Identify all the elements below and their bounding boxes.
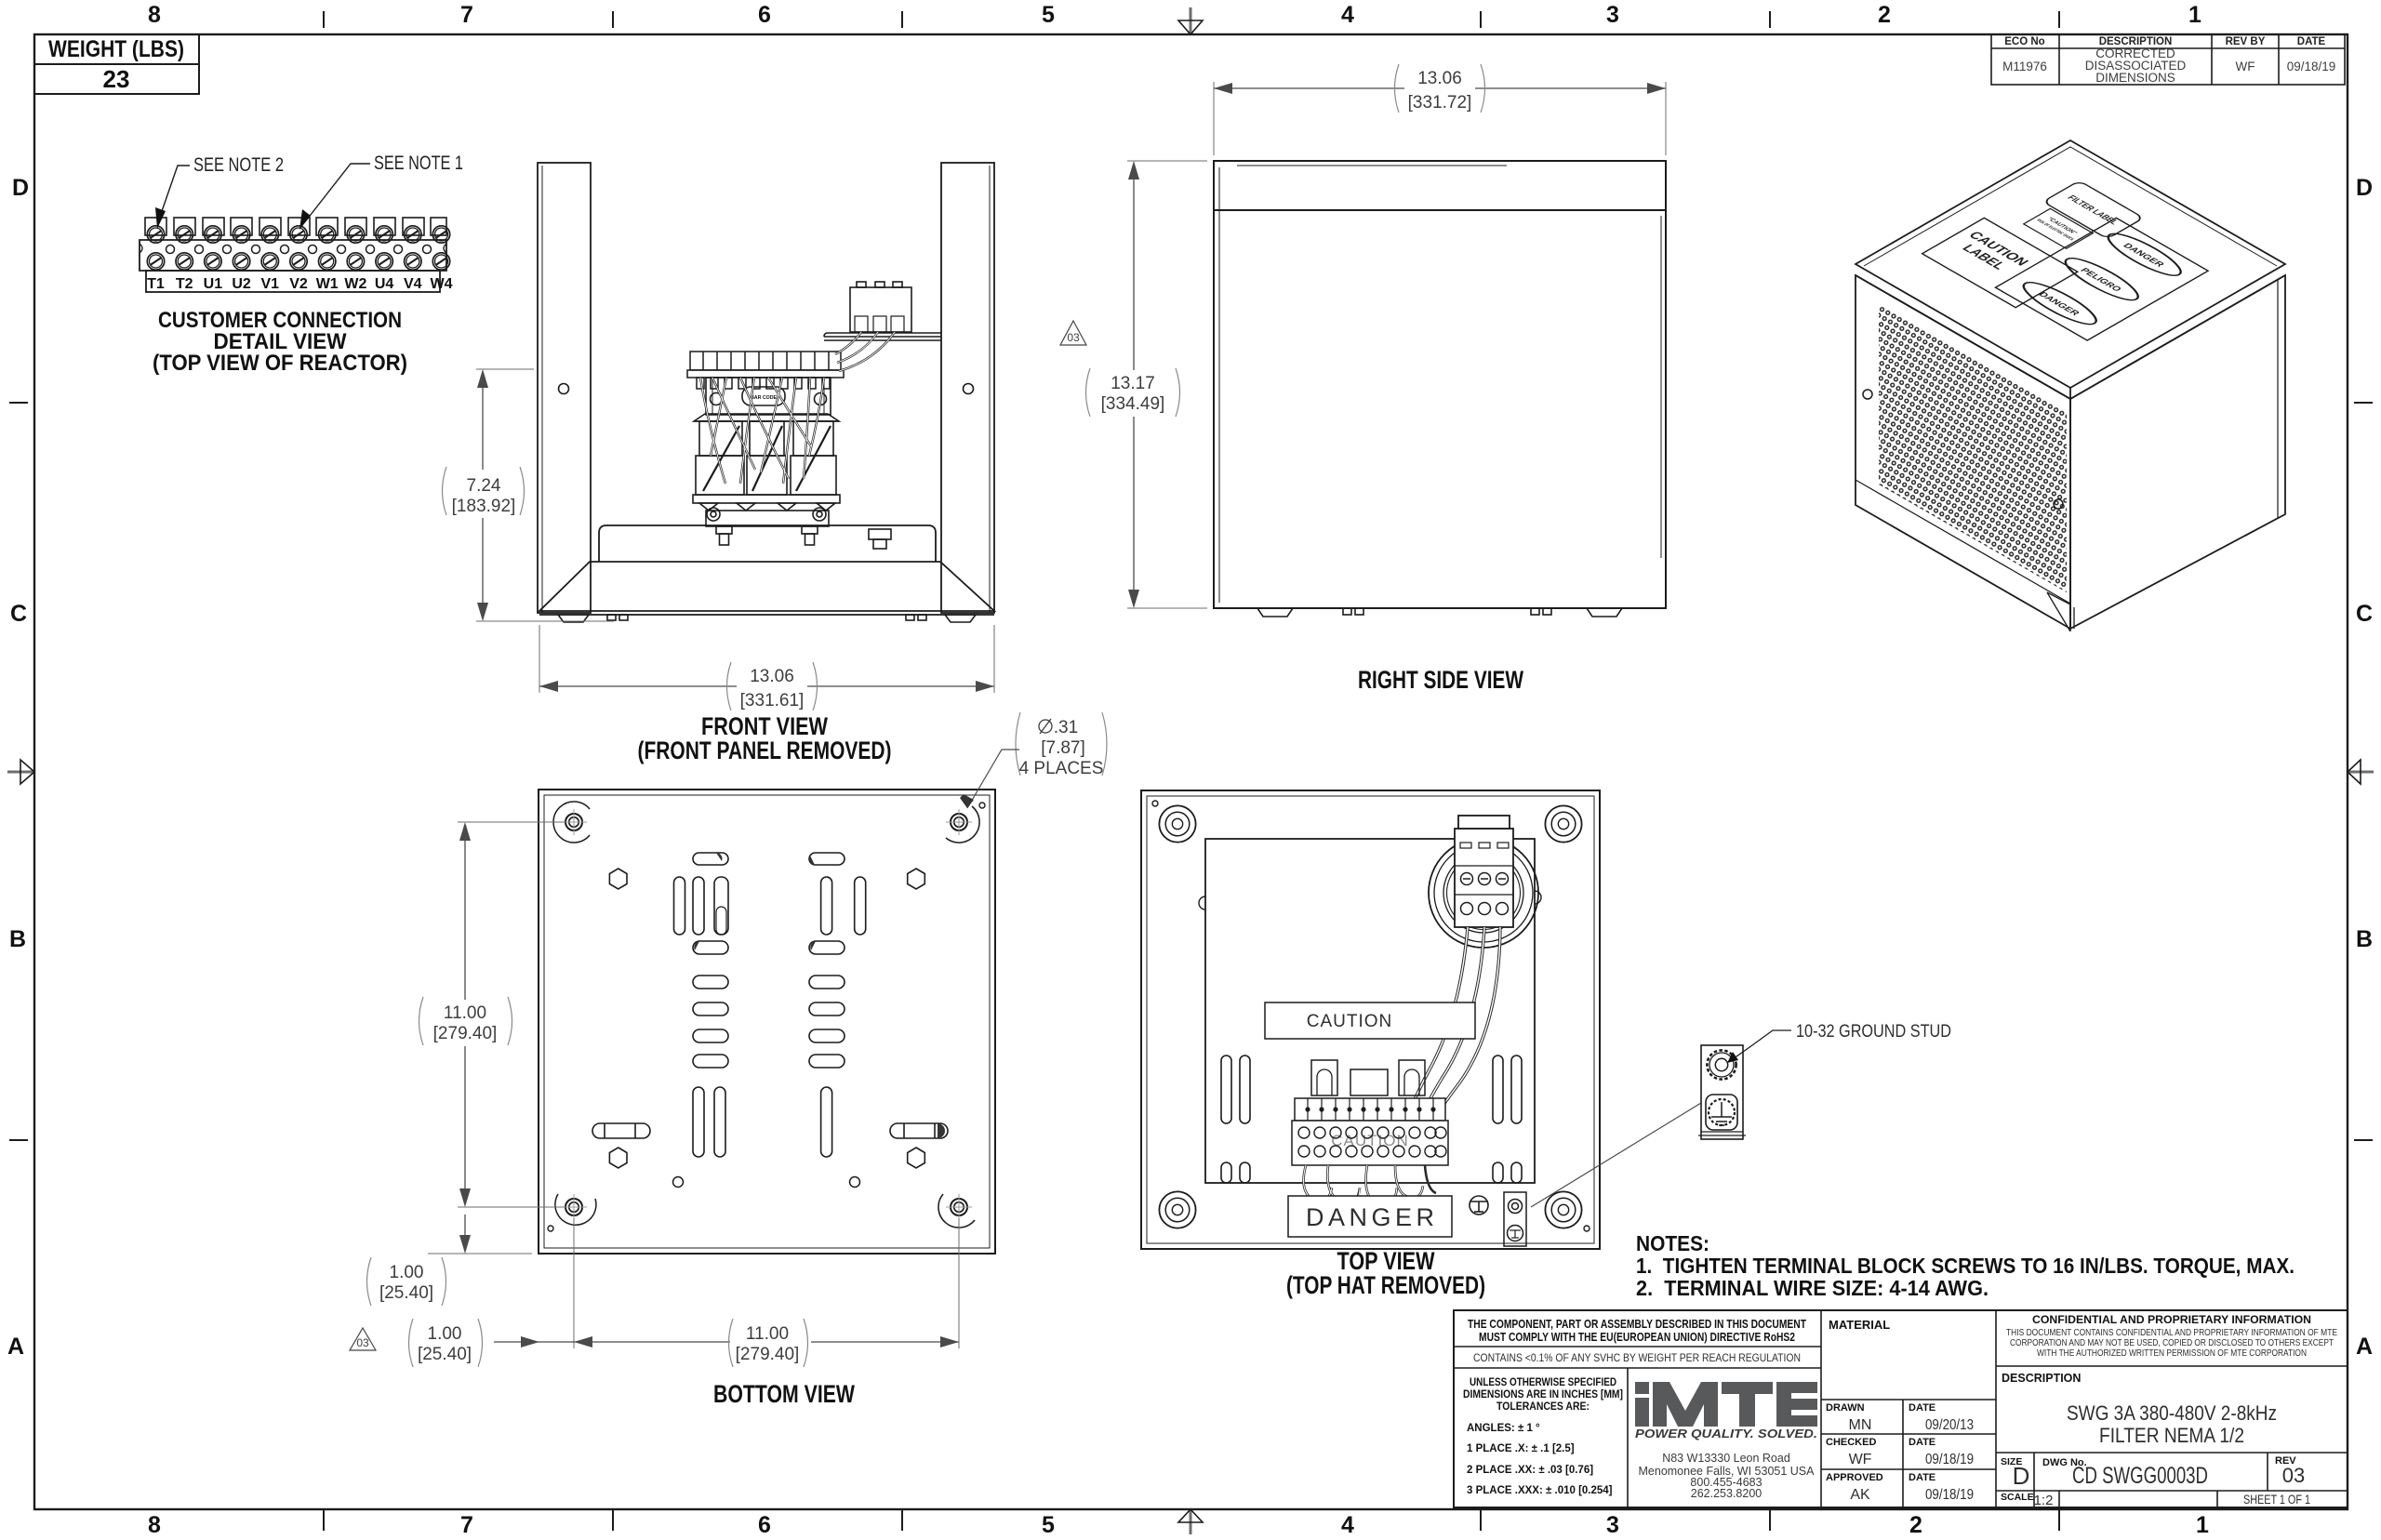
svg-text:[25.40]: [25.40]	[379, 1283, 433, 1303]
svg-text:CAUTION: CAUTION	[1307, 1012, 1393, 1031]
svg-text:POWER QUALITY. SOLVED.: POWER QUALITY. SOLVED.	[1635, 1427, 1817, 1440]
svg-text:WF: WF	[1849, 1452, 1872, 1467]
svg-text:SEE NOTE 2: SEE NOTE 2	[193, 154, 284, 176]
svg-text:6: 6	[758, 2, 771, 28]
svg-text:09/18/19: 09/18/19	[1925, 1487, 1974, 1503]
svg-text:N83 W13330 Leon Road: N83 W13330 Leon Road	[1662, 1452, 1790, 1465]
svg-text:U1: U1	[204, 276, 223, 292]
svg-text:A: A	[2356, 1334, 2373, 1360]
svg-text:ANGLES: ± 1 °: ANGLES: ± 1 °	[1467, 1423, 1540, 1434]
svg-text:V1: V1	[261, 276, 280, 292]
svg-text:M11976: M11976	[2002, 60, 2047, 73]
svg-text:THE COMPONENT, PART OR ASSEMBL: THE COMPONENT, PART OR ASSEMBLY DESCRIBE…	[1468, 1318, 1806, 1331]
svg-text:11.00: 11.00	[746, 1324, 789, 1344]
svg-text:[279.40]: [279.40]	[736, 1345, 800, 1364]
svg-text:5: 5	[1042, 1512, 1055, 1538]
svg-text:(TOP VIEW OF REACTOR): (TOP VIEW OF REACTOR)	[153, 351, 407, 376]
svg-text:3 PLACE .XXX: ± .010 [0.254]: 3 PLACE .XXX: ± .010 [0.254]	[1467, 1485, 1613, 1496]
svg-text:1 PLACE .X: ± .1 [2.5]: 1 PLACE .X: ± .1 [2.5]	[1467, 1443, 1575, 1454]
svg-text:C: C	[2356, 601, 2373, 627]
svg-text:SEE NOTE 1: SEE NOTE 1	[374, 153, 463, 174]
svg-text:UNLESS OTHERWISE SPECIFIED: UNLESS OTHERWISE SPECIFIED	[1470, 1377, 1616, 1388]
svg-text:4: 4	[1341, 1512, 1354, 1538]
svg-text:4: 4	[1341, 2, 1354, 28]
svg-text:23: 23	[103, 65, 130, 93]
svg-text:MN: MN	[1849, 1417, 1872, 1433]
svg-text:7: 7	[460, 1512, 473, 1538]
svg-text:2. TERMINAL WIRE SIZE: 4-14 A: 2. TERMINAL WIRE SIZE: 4-14 AWG.	[1636, 1276, 1989, 1300]
svg-text:(FRONT PANEL REMOVED): (FRONT PANEL REMOVED)	[638, 737, 892, 764]
svg-text:ECO No: ECO No	[2004, 36, 2044, 47]
svg-text:MUST COMPLY WITH THE EU(EUROPE: MUST COMPLY WITH THE EU(EUROPEAN UNION) …	[1479, 1331, 1795, 1344]
svg-text:11.00: 11.00	[444, 1003, 486, 1023]
svg-text:CONTAINS <0.1% OF ANY SVHC BY: CONTAINS <0.1% OF ANY SVHC BY WEIGHT PER…	[1473, 1351, 1801, 1364]
svg-text:5: 5	[1042, 2, 1055, 28]
svg-text:6: 6	[758, 1512, 771, 1538]
svg-text:3: 3	[1606, 2, 1619, 28]
svg-text:CONFIDENTIAL AND PROPRIETARY I: CONFIDENTIAL AND PROPRIETARY INFORMATION	[2032, 1313, 2311, 1326]
svg-text:[331.72]: [331.72]	[1408, 93, 1472, 113]
svg-text:[183.92]: [183.92]	[452, 497, 516, 516]
svg-text:10-32 GROUND STUD: 10-32 GROUND STUD	[1796, 1022, 1951, 1042]
svg-text:DIMENSIONS: DIMENSIONS	[2095, 71, 2175, 85]
svg-text:SHEET 1 OF 1: SHEET 1 OF 1	[2243, 1492, 2310, 1507]
svg-text:DRAWN: DRAWN	[1826, 1402, 1865, 1414]
svg-text:13.06: 13.06	[750, 667, 794, 686]
svg-text:[331.61]: [331.61]	[740, 691, 805, 710]
svg-text:09/20/13: 09/20/13	[1925, 1417, 1974, 1433]
svg-text:03: 03	[1067, 331, 1080, 344]
svg-text:U4: U4	[375, 276, 394, 292]
svg-text:DESCRIPTION: DESCRIPTION	[2002, 1372, 2081, 1385]
svg-text:D: D	[12, 175, 29, 201]
svg-text:CAUTION: CAUTION	[1331, 1132, 1409, 1149]
svg-text:SCALE: SCALE	[2001, 1492, 2034, 1503]
svg-text:1: 1	[2196, 1512, 2209, 1538]
svg-text:[334.49]: [334.49]	[1101, 394, 1165, 414]
svg-text:DIMENSIONS ARE IN INCHES [MM]: DIMENSIONS ARE IN INCHES [MM]	[1463, 1389, 1623, 1401]
svg-text:[279.40]: [279.40]	[433, 1024, 498, 1043]
svg-text:SWG 3A 380-480V 2-8kHz: SWG 3A 380-480V 2-8kHz	[2067, 1401, 2277, 1425]
svg-text:A: A	[7, 1334, 24, 1360]
svg-text:09/18/19: 09/18/19	[2287, 60, 2336, 73]
svg-text:09/18/19: 09/18/19	[1925, 1452, 1974, 1467]
svg-text:MATERIAL: MATERIAL	[1829, 1318, 1890, 1332]
svg-text:T2: T2	[176, 276, 193, 292]
svg-text:WITH THE AUTHORIZED WRITTEN PE: WITH THE AUTHORIZED WRITTEN PERMISSION O…	[2037, 1348, 2307, 1359]
svg-text:T1: T1	[147, 276, 165, 292]
svg-text:W4: W4	[431, 276, 453, 292]
svg-text:03: 03	[356, 1336, 369, 1349]
svg-text:D: D	[2013, 1462, 2030, 1490]
svg-text:W2: W2	[344, 276, 366, 292]
svg-text:[7.87]: [7.87]	[1041, 738, 1085, 758]
svg-text:B: B	[9, 926, 26, 952]
svg-text:FILTER NEMA 1/2: FILTER NEMA 1/2	[2099, 1424, 2244, 1447]
svg-text:1.00: 1.00	[390, 1263, 424, 1282]
svg-text:[25.40]: [25.40]	[418, 1345, 472, 1364]
svg-text:TOLERANCES ARE:: TOLERANCES ARE:	[1496, 1401, 1590, 1413]
svg-text:1:2: 1:2	[2034, 1493, 2054, 1508]
svg-text:CORPORATION AND MAY NOT BE USE: CORPORATION AND MAY NOT BE USED, COPIED …	[2010, 1338, 2334, 1348]
svg-text:2 PLACE .XX: ± .03 [0.76]: 2 PLACE .XX: ± .03 [0.76]	[1467, 1465, 1593, 1476]
svg-text:DATE: DATE	[2297, 36, 2326, 47]
svg-text:WEIGHT (LBS): WEIGHT (LBS)	[48, 36, 184, 62]
svg-text:03: 03	[2282, 1464, 2305, 1487]
svg-text:RIGHT SIDE VIEW: RIGHT SIDE VIEW	[1358, 666, 1523, 694]
svg-text:W1: W1	[316, 276, 339, 292]
svg-text:DATE: DATE	[1909, 1437, 1935, 1448]
svg-text:U2: U2	[232, 276, 251, 292]
svg-text:4 PLACES: 4 PLACES	[1019, 759, 1104, 778]
svg-text:AK: AK	[1850, 1487, 1870, 1503]
svg-text:2: 2	[1878, 2, 1891, 28]
svg-text:BOTTOM VIEW: BOTTOM VIEW	[713, 1380, 855, 1408]
svg-text:THIS DOCUMENT CONTAINS CONFIDE: THIS DOCUMENT CONTAINS CONFIDENTIAL AND …	[2006, 1328, 2337, 1338]
svg-text:7.24: 7.24	[467, 476, 501, 496]
svg-text:CHECKED: CHECKED	[1826, 1437, 1876, 1448]
svg-text:2: 2	[1909, 1512, 1922, 1538]
svg-text:8: 8	[148, 2, 161, 28]
svg-text:DATE: DATE	[1909, 1472, 1935, 1483]
svg-text:1: 1	[2188, 2, 2201, 28]
svg-text:CD SWGG0003D: CD SWGG0003D	[2072, 1463, 2208, 1489]
svg-text:1. TIGHTEN TERMINAL BLOCK SCR: 1. TIGHTEN TERMINAL BLOCK SCREWS TO 16 I…	[1636, 1254, 2295, 1278]
svg-text:BAR CODE: BAR CODE	[751, 395, 777, 401]
svg-text:V2: V2	[289, 276, 308, 292]
svg-text:(TOP HAT REMOVED): (TOP HAT REMOVED)	[1286, 1271, 1485, 1299]
svg-text:DATE: DATE	[1909, 1402, 1935, 1414]
svg-text:1.00: 1.00	[428, 1324, 462, 1344]
svg-text:262.253.8200: 262.253.8200	[1691, 1487, 1762, 1500]
svg-text:NOTES:: NOTES:	[1636, 1231, 1709, 1255]
svg-text:V4: V4	[404, 276, 422, 292]
svg-text:C: C	[10, 601, 27, 627]
svg-text:WF: WF	[2236, 60, 2255, 73]
svg-text:B: B	[2356, 926, 2373, 952]
svg-text:D: D	[2356, 175, 2373, 201]
svg-text:3: 3	[1606, 1512, 1619, 1538]
svg-text:13.06: 13.06	[1417, 69, 1462, 88]
svg-text:APPROVED: APPROVED	[1826, 1472, 1883, 1483]
svg-text:REV BY: REV BY	[2226, 36, 2266, 47]
svg-text:8: 8	[148, 1512, 161, 1538]
svg-text:.31: .31	[1054, 718, 1078, 737]
svg-text:7: 7	[460, 2, 473, 28]
svg-text:13.17: 13.17	[1111, 374, 1155, 393]
